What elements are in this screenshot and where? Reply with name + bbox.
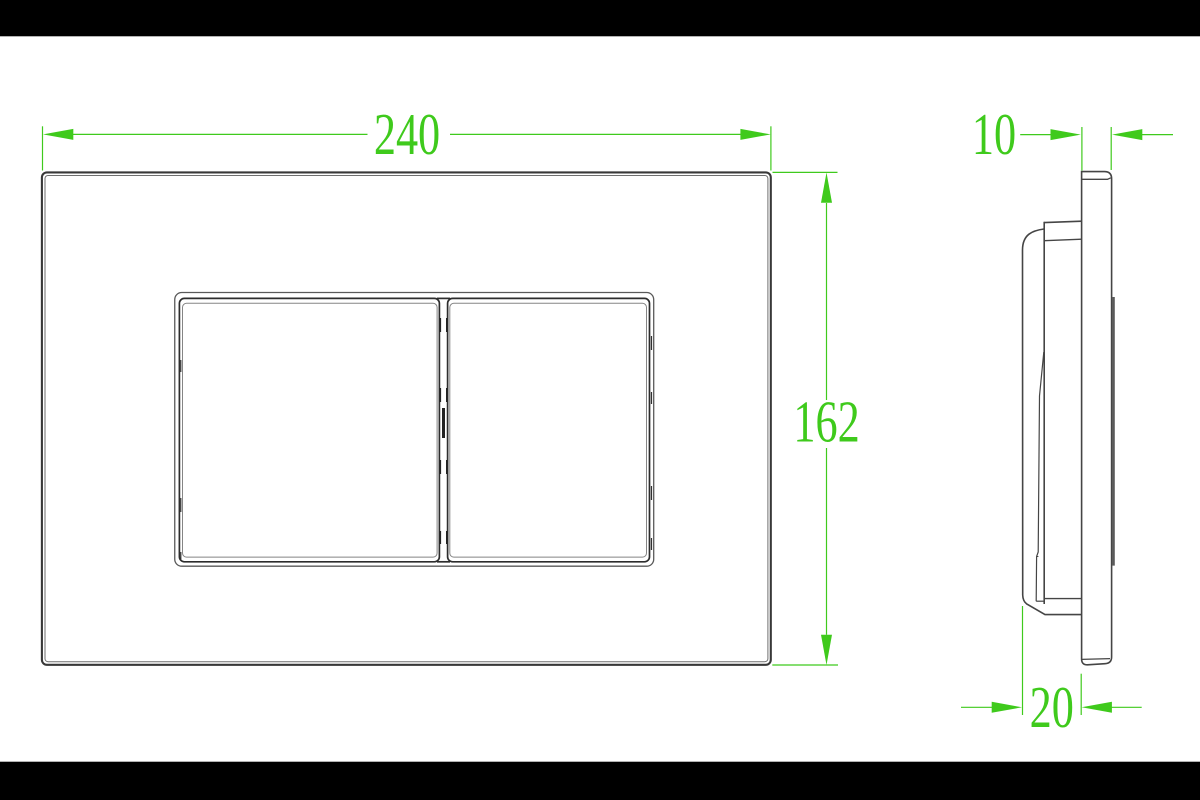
svg-text:162: 162: [793, 391, 859, 455]
svg-text:10: 10: [972, 103, 1016, 167]
svg-text:240: 240: [374, 103, 440, 167]
svg-text:20: 20: [1030, 676, 1074, 740]
